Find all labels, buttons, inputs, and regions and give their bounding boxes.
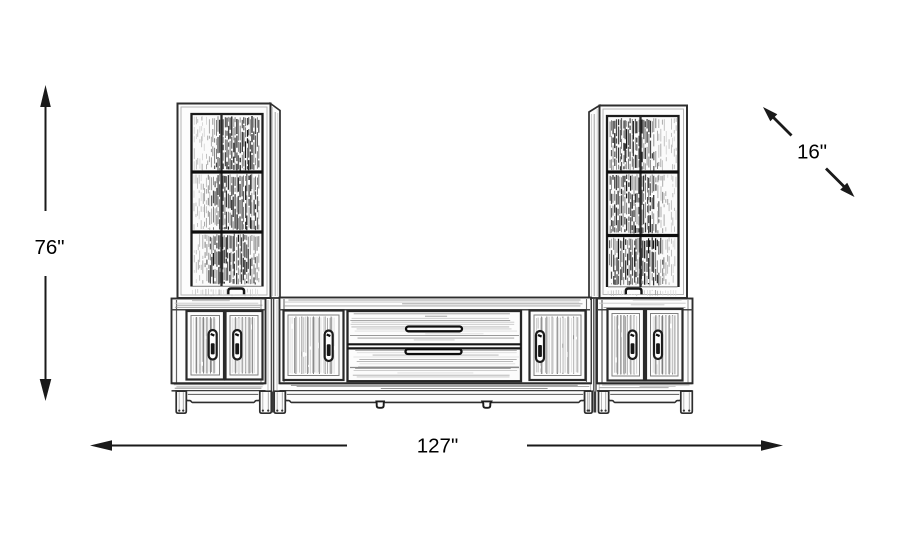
svg-text:127": 127" — [417, 435, 458, 458]
svg-text:16": 16" — [797, 141, 827, 164]
svg-text:76": 76" — [34, 236, 64, 259]
